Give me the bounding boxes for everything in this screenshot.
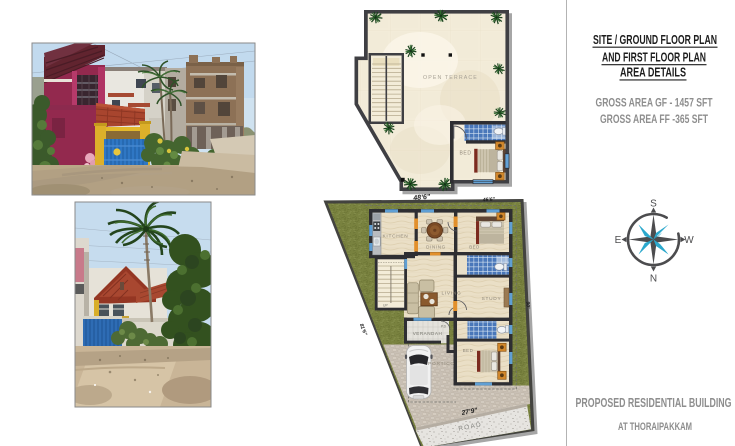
- svg-text:P.D: P.D: [441, 325, 447, 329]
- svg-text:GROSS AREA GF - 1457 SFT: GROSS AREA GF - 1457 SFT: [596, 96, 713, 110]
- svg-text:46’6”: 46’6”: [482, 197, 496, 204]
- svg-text:OPEN TERRACE: OPEN TERRACE: [423, 75, 478, 81]
- svg-text:BED: BED: [469, 245, 480, 250]
- svg-text:N: N: [650, 274, 657, 285]
- svg-text:STUDY: STUDY: [482, 296, 502, 302]
- svg-text:AND FIRST FLOOR PLAN: AND FIRST FLOOR PLAN: [602, 51, 706, 65]
- svg-text:GROSS AREA FF -365 SFT: GROSS AREA FF -365 SFT: [600, 112, 708, 126]
- svg-text:90’: 90’: [524, 301, 530, 309]
- svg-text:AREA DETAILS: AREA DETAILS: [620, 66, 686, 80]
- svg-text:S: S: [650, 199, 657, 210]
- svg-text:PORTICO: PORTICO: [428, 361, 455, 367]
- svg-text:VERANDAH: VERANDAH: [413, 331, 443, 336]
- svg-text:SITE / GROUND FLOOR PLAN: SITE / GROUND FLOOR PLAN: [593, 33, 717, 47]
- svg-text:LIVING: LIVING: [442, 291, 462, 297]
- svg-text:BED: BED: [459, 151, 471, 157]
- svg-text:W: W: [684, 235, 694, 246]
- svg-text:DINING: DINING: [426, 245, 446, 250]
- svg-text:AT THORAIPAKKAM: AT THORAIPAKKAM: [618, 421, 692, 433]
- svg-text:UP: UP: [383, 304, 388, 308]
- svg-text:BED: BED: [463, 348, 474, 353]
- svg-text:E: E: [615, 235, 622, 246]
- svg-text:PROPOSED RESIDENTIAL BUILDING: PROPOSED RESIDENTIAL BUILDING: [576, 396, 732, 410]
- svg-text:KITCHEN: KITCHEN: [383, 234, 409, 240]
